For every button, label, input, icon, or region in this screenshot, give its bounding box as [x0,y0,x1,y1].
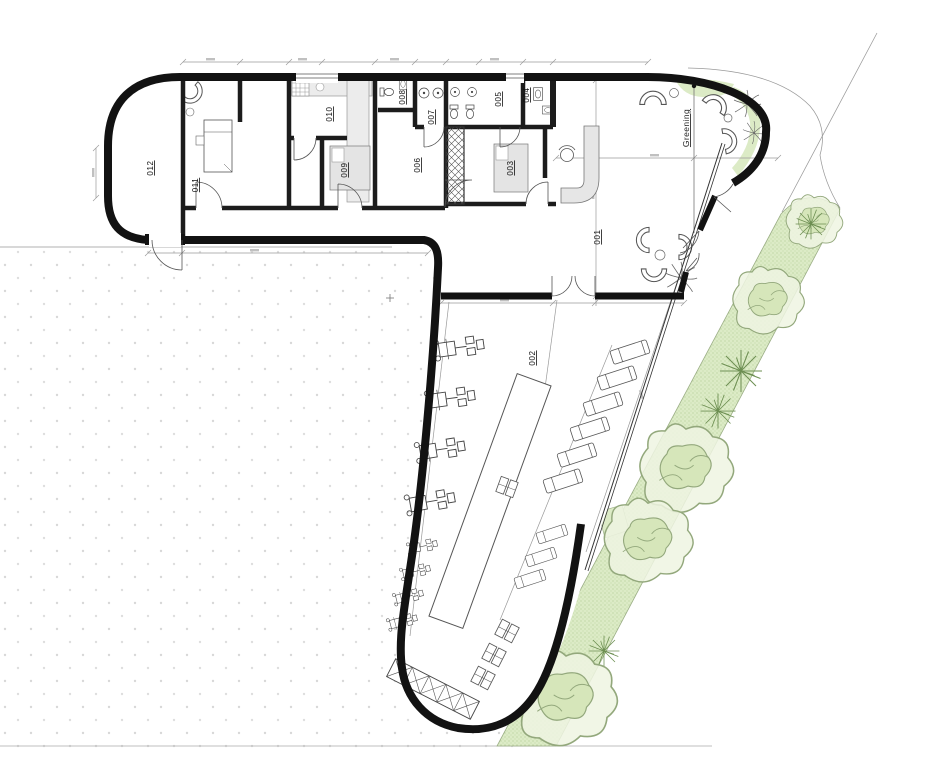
room-label-009: 009 [340,162,349,177]
floor-plan-canvas: 001 002 003 004 005 006 007 008 009 010 … [0,0,935,760]
greening-label: Greening [681,109,691,147]
shaft-hatched [446,127,464,204]
bedroom-009-furniture [330,146,370,190]
room-label-012: 012 [146,160,155,175]
room-label-003: 003 [506,160,515,175]
room-label-005: 005 [494,91,503,106]
room-label-008: 008 [398,89,407,104]
room-label-007: 007 [427,109,436,124]
room-label-011: 011 [191,178,200,193]
room-label-004: 004 [522,87,531,102]
room-label-006: 006 [413,157,422,172]
room-label-010: 010 [325,106,334,121]
room-label-002: 002 [528,350,537,365]
floor-plan-drawing: 001 002 003 004 005 006 007 008 009 010 … [0,0,935,760]
room-label-001: 001 [593,229,602,244]
